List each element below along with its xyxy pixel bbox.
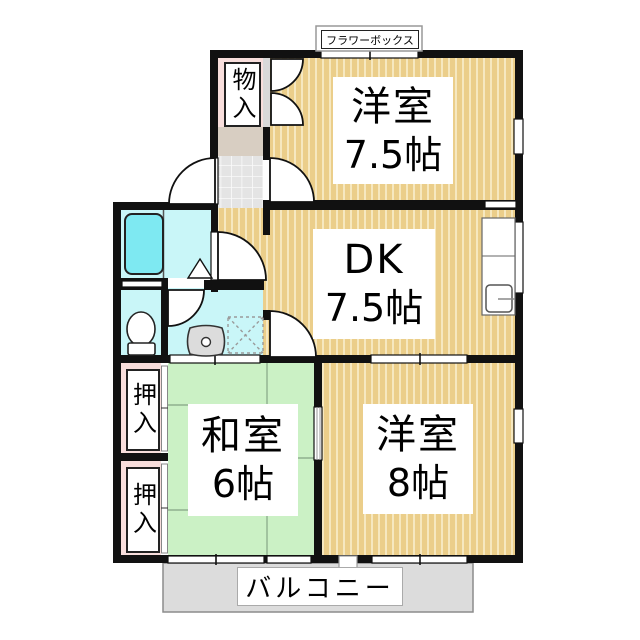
sliding-door-washitsu-western2 — [314, 407, 322, 460]
room-size: 7.5帖 — [344, 132, 442, 178]
window-right-2 — [514, 409, 523, 443]
bathroom-door-opening — [211, 232, 218, 280]
balcony-text: バルコニー — [245, 568, 394, 605]
wall-hall-2 — [263, 202, 270, 235]
wall-bath-right-1 — [211, 202, 218, 234]
window-bath-small — [122, 281, 162, 287]
wall-left — [113, 202, 121, 563]
oshiire-upper-text: 押入 — [126, 382, 161, 438]
wall-hall-1 — [263, 127, 270, 160]
toilet-icon — [127, 312, 155, 355]
window-kitchen — [515, 222, 523, 293]
window-right-1 — [514, 119, 523, 154]
flower-box-text: フラワーボックス — [326, 32, 414, 48]
room-name: 洋室 — [376, 411, 460, 460]
monoire-text: 物入 — [225, 67, 260, 123]
room-name: 洋室 — [351, 83, 435, 132]
wall-toilet-washroom — [161, 288, 168, 358]
washbasin-icon — [188, 326, 225, 357]
sliding-door-dk-western2 — [371, 355, 467, 363]
genkan-tile — [218, 156, 263, 208]
room-name: 和室 — [201, 412, 285, 461]
western-room-2-label: 洋室 8帖 — [363, 404, 473, 514]
wall-washitsu-right-1 — [314, 363, 322, 407]
japanese-room-label: 和室 6帖 — [188, 404, 298, 516]
room-name: DK — [343, 236, 404, 285]
wall-hall-3 — [263, 310, 270, 320]
doorway-floor — [263, 315, 270, 355]
dining-kitchen-label: DK 7.5帖 — [313, 229, 435, 339]
balcony-label: バルコニー — [237, 567, 403, 606]
oshiire-upper-label: 押入 — [126, 369, 160, 451]
window-dk-pass — [485, 201, 516, 208]
window-washitsu-2 — [267, 556, 311, 563]
wall-oshiire-divider — [113, 453, 168, 461]
monoire-label: 物入 — [224, 62, 261, 127]
wall-washroom-top — [204, 280, 264, 290]
bathtub-icon — [125, 214, 163, 274]
entrance-door-swing-icon — [169, 158, 215, 204]
kitchen-counter — [482, 218, 515, 315]
wall-washitsu-right-2 — [314, 460, 322, 556]
oshiire-lower-text: 押入 — [126, 482, 161, 538]
oshiire-lower-label: 押入 — [126, 467, 160, 553]
western-room-1-label: 洋室 7.5帖 — [333, 77, 453, 184]
closet-door-track — [263, 57, 270, 127]
wall-genkan-left — [210, 50, 218, 158]
room-size: 7.5帖 — [325, 285, 423, 331]
genkan-step — [218, 127, 263, 156]
flower-box-label: フラワーボックス — [321, 30, 419, 49]
floor-plan: フラワーボックス 洋室 7.5帖 DK 7.5帖 和室 6帖 洋室 8帖 物入 … — [0, 0, 640, 640]
room-size: 6帖 — [212, 461, 274, 507]
room-size: 8帖 — [387, 460, 449, 506]
